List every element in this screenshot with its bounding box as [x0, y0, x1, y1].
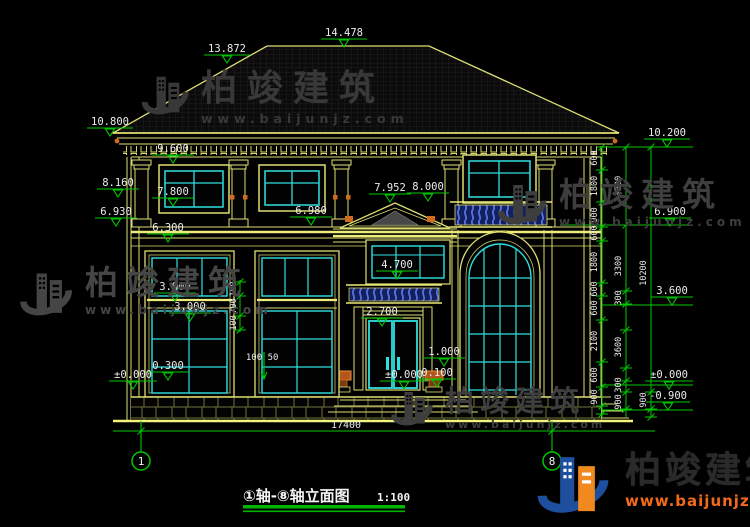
svg-text:0.100: 0.100	[421, 367, 453, 379]
capital-ornament	[345, 216, 353, 222]
svg-text:600: 600	[590, 300, 600, 315]
svg-text:1: 1	[138, 455, 145, 468]
svg-text:2100: 2100	[590, 331, 600, 351]
svg-text:14.478: 14.478	[325, 27, 363, 39]
total-width-dim: 17400	[331, 420, 361, 431]
svg-text:1800: 1800	[590, 252, 600, 272]
svg-text:3300: 3300	[614, 176, 624, 196]
svg-text:900: 900	[639, 392, 649, 407]
svg-text:600: 600	[590, 367, 600, 382]
svg-text:3.600: 3.600	[656, 285, 688, 297]
arched-window	[452, 230, 552, 397]
elevation-canvas: 14.478 13.872 10.800 9.600 8.160 7.800 6…	[0, 0, 750, 527]
svg-text:300: 300	[614, 290, 624, 305]
flag-porch-eave: 6.980	[290, 205, 332, 225]
bottom-dimension: 17400 1 8	[113, 420, 655, 470]
porch-pediment	[333, 203, 457, 242]
svg-text:50: 50	[268, 353, 279, 363]
cad-elevation-drawing: 14.478 13.872 10.800 9.600 8.160 7.800 6…	[0, 0, 750, 527]
svg-text:900: 900	[614, 394, 624, 409]
svg-text:±0.000: ±0.000	[650, 369, 688, 381]
chain-labels-inner: 600 1800 900 600 1800 600 600 2100 600 9…	[590, 150, 600, 404]
svg-text:1800: 1800	[590, 176, 600, 196]
svg-text:6.900: 6.900	[654, 206, 686, 218]
svg-text:10.800: 10.800	[91, 116, 129, 128]
svg-text:300: 300	[614, 377, 624, 392]
drawing-scale: 1:100	[377, 491, 410, 504]
chain-labels-outer: 10200 900	[639, 260, 649, 407]
svg-text:3600: 3600	[614, 337, 624, 357]
svg-text:7.952: 7.952	[374, 182, 406, 194]
svg-text:9.600: 9.600	[157, 143, 189, 155]
svg-text:3.900: 3.900	[159, 281, 191, 293]
balcony-balustrade	[450, 202, 552, 227]
svg-text:0.300: 0.300	[152, 360, 184, 372]
flag-win2-head: 9.600	[152, 143, 194, 163]
flag-porch-ridge: 7.952	[369, 182, 411, 202]
window-1f-left-a	[145, 251, 234, 397]
flag-level2-right: 6.900	[649, 206, 691, 226]
svg-text:10200: 10200	[639, 260, 649, 286]
svg-text:2.700: 2.700	[366, 306, 398, 318]
flag-ground-right: ±0.000	[645, 369, 693, 389]
title-block: ①轴-⑧轴立面图 1:100	[243, 487, 410, 512]
svg-text:100: 100	[229, 315, 239, 330]
svg-text:3.000: 3.000	[174, 301, 206, 313]
flag-balcony-rail: 8.000	[407, 181, 449, 201]
svg-text:600: 600	[590, 281, 600, 296]
svg-text:1.000: 1.000	[428, 346, 460, 358]
svg-text:10.200: 10.200	[648, 127, 686, 139]
svg-text:7.800: 7.800	[157, 186, 189, 198]
flag-capital: 8.160	[97, 177, 139, 197]
svg-text:±0.000: ±0.000	[385, 369, 423, 381]
svg-text:6.300: 6.300	[152, 222, 184, 234]
svg-text:13.872: 13.872	[208, 43, 246, 55]
window-2f-balcony	[463, 155, 536, 203]
eave-ornament-right	[613, 139, 618, 144]
svg-text:8.160: 8.160	[102, 177, 134, 189]
plinth	[113, 397, 633, 421]
chain-labels-mid: 3300 3300 300 3600 300 900	[614, 176, 624, 410]
svg-text:6.930: 6.930	[100, 206, 132, 218]
drawing-title: ①轴-⑧轴立面图	[243, 487, 350, 505]
svg-text:700: 700	[229, 298, 239, 313]
flag-floor-band: 6.300	[147, 222, 189, 242]
flag-level1-right: 3.600	[651, 285, 693, 305]
svg-text:4.700: 4.700	[381, 259, 413, 271]
entry-balustrade	[346, 285, 442, 303]
pier-dimension-chain: 100 700 100	[229, 279, 246, 334]
svg-text:900: 900	[590, 207, 600, 222]
svg-text:100: 100	[229, 281, 239, 296]
svg-text:600: 600	[590, 225, 600, 240]
svg-text:100: 100	[246, 353, 262, 363]
svg-text:3300: 3300	[614, 256, 624, 276]
svg-text:600: 600	[590, 150, 600, 165]
svg-text:900: 900	[590, 389, 600, 404]
svg-text:6.980: 6.980	[295, 205, 327, 217]
svg-text:±0.000: ±0.000	[114, 369, 152, 381]
eave-ornament-left	[115, 139, 120, 144]
flag-right-eave: 10.200	[644, 127, 690, 147]
capital-ornament	[427, 216, 435, 222]
window-1f-left-b	[255, 251, 339, 397]
roof	[113, 46, 619, 144]
flag-ridge: 14.478	[321, 27, 367, 47]
svg-text:8.000: 8.000	[412, 181, 444, 193]
svg-text:8: 8	[549, 455, 556, 468]
